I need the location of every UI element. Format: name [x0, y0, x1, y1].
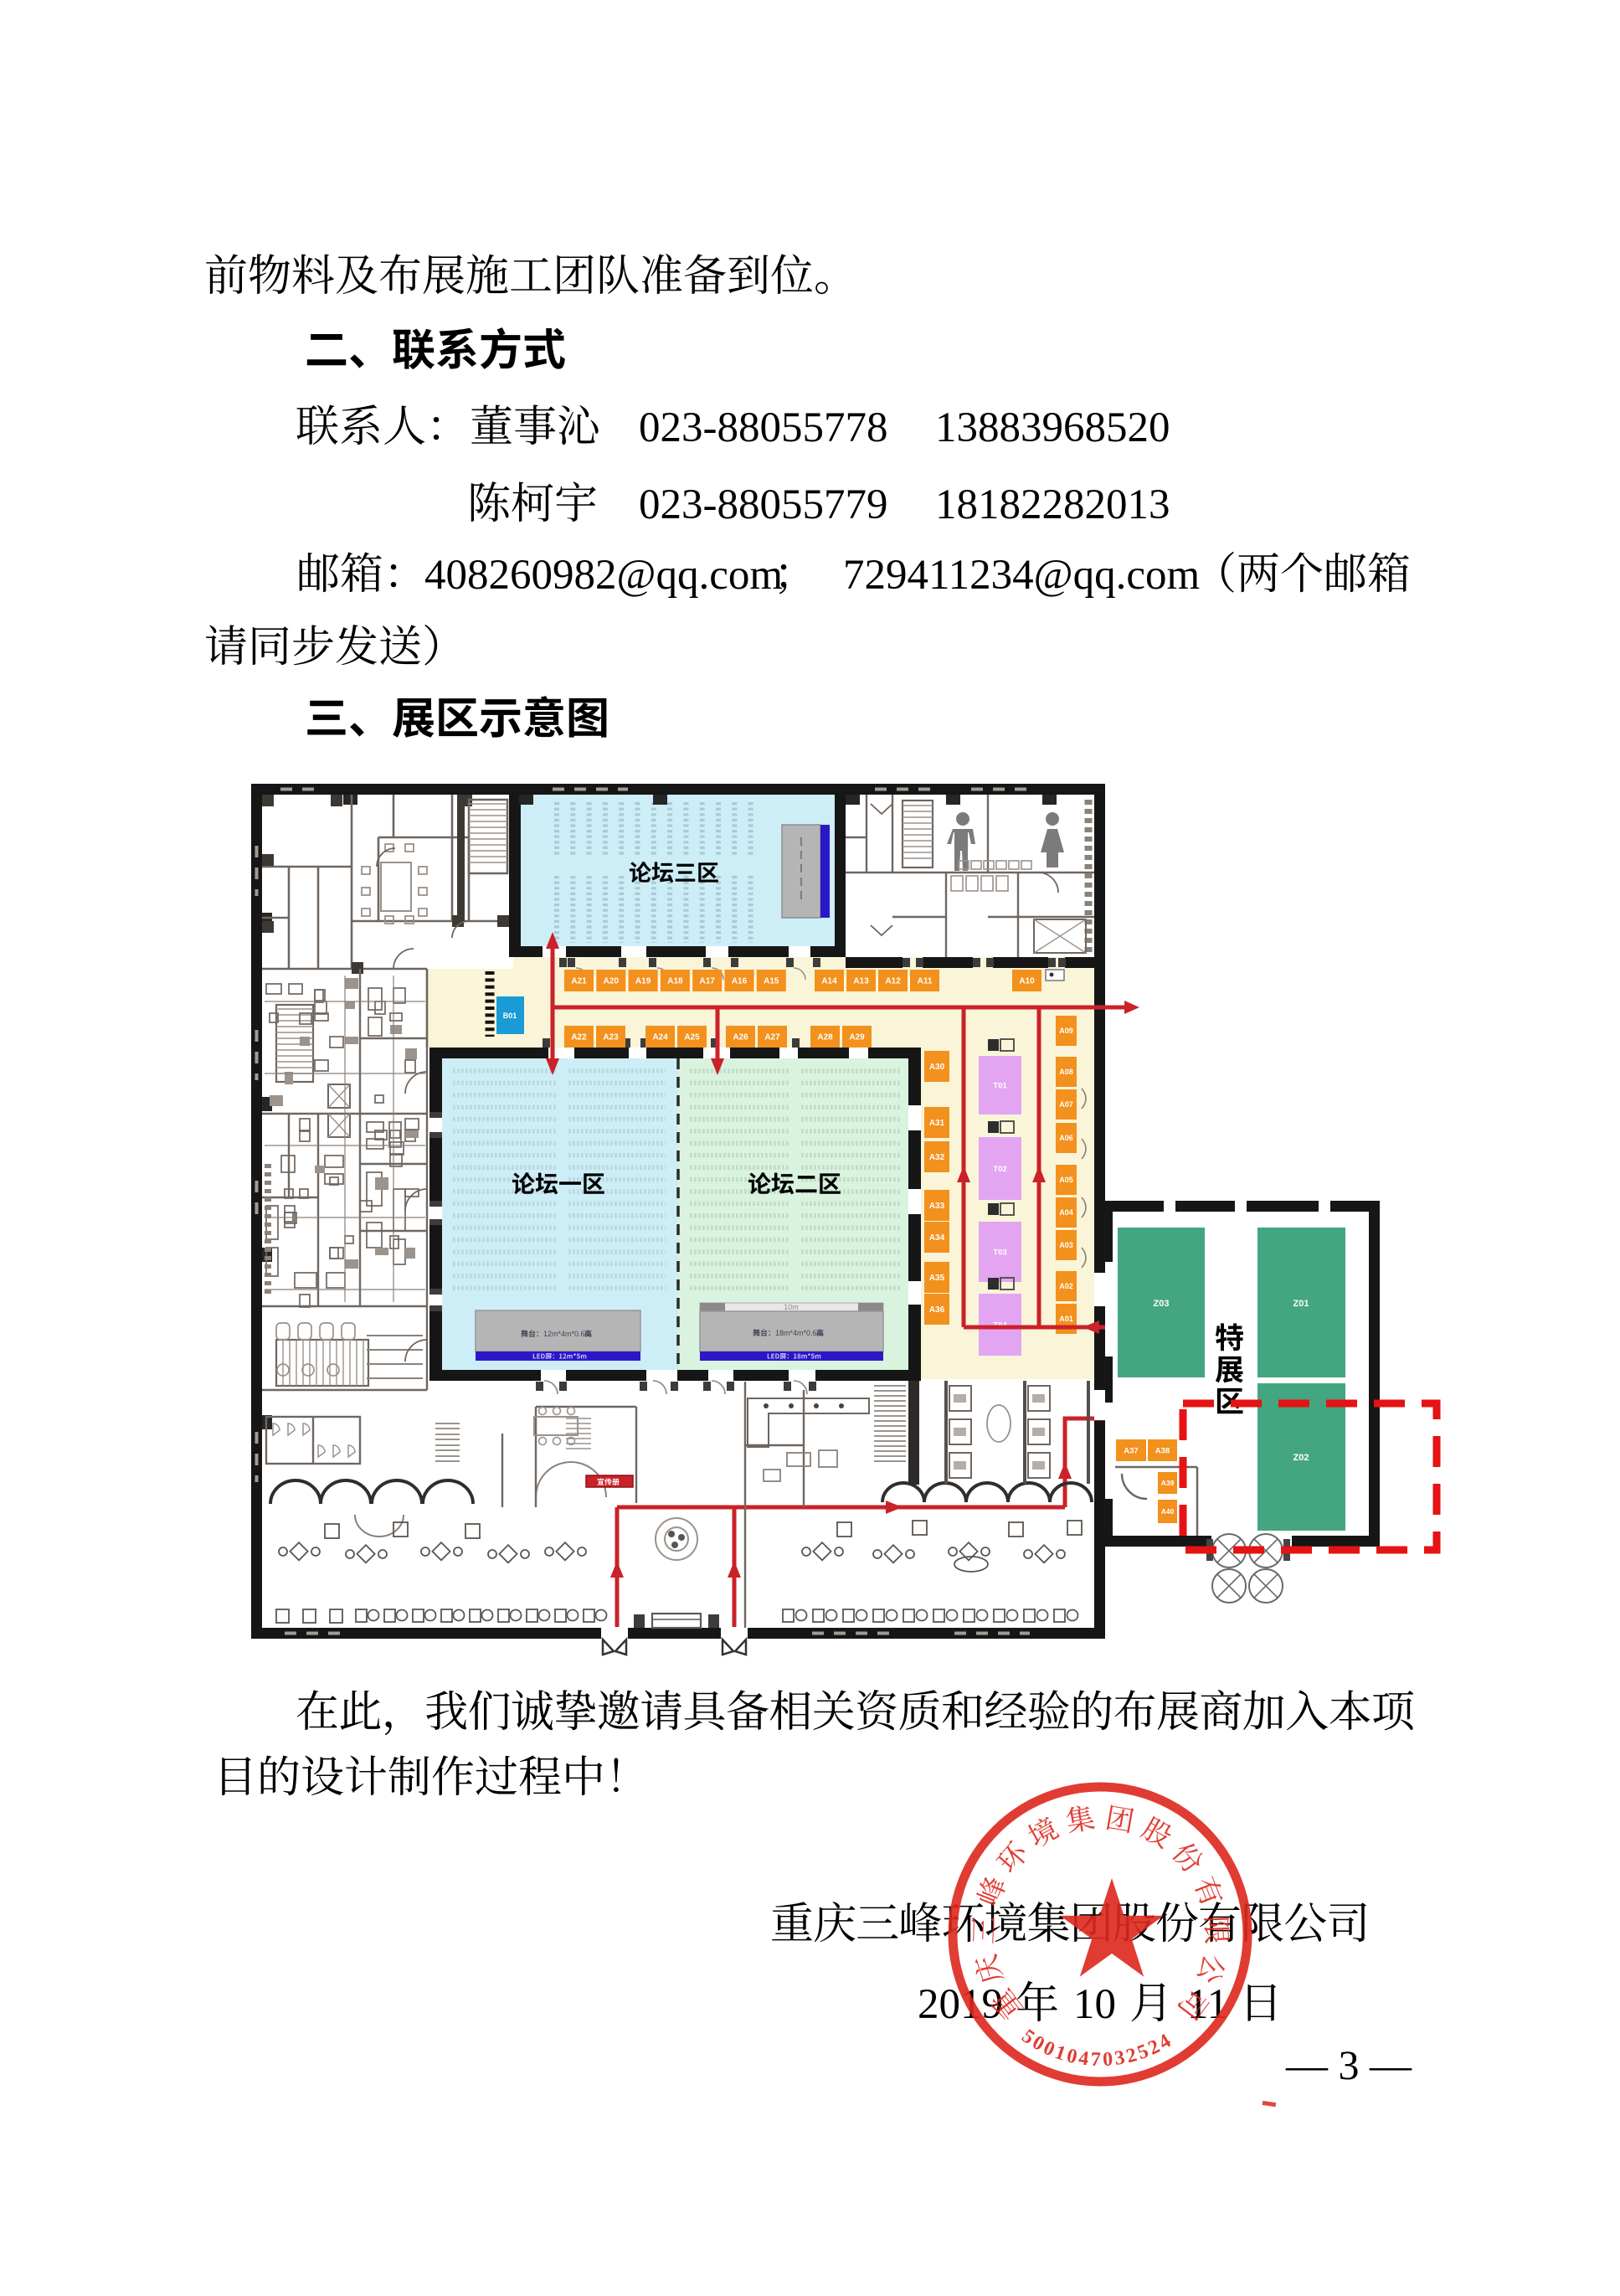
svg-text:A22: A22 [571, 1033, 587, 1042]
svg-text:A37: A37 [1124, 1446, 1138, 1455]
svg-text:A24: A24 [652, 1033, 668, 1042]
svg-text:A03: A03 [1059, 1241, 1073, 1249]
svg-text:A08: A08 [1059, 1068, 1073, 1076]
svg-text:A11: A11 [918, 977, 933, 986]
svg-text:A05: A05 [1059, 1176, 1073, 1184]
svg-text:A28: A28 [817, 1033, 833, 1042]
svg-text:A35: A35 [929, 1274, 945, 1283]
svg-text:A36: A36 [929, 1305, 945, 1315]
svg-text:A16: A16 [732, 977, 748, 986]
svg-text:A01: A01 [1059, 1315, 1073, 1323]
svg-text:Z02: Z02 [1293, 1453, 1309, 1463]
svg-text:A17: A17 [700, 977, 716, 986]
svg-text:A29: A29 [849, 1033, 865, 1042]
svg-text:A10: A10 [1019, 977, 1035, 986]
svg-text:18182282013: 18182282013 [935, 481, 1170, 528]
svg-text:A12: A12 [885, 977, 901, 986]
svg-text:— 3 —: — 3 — [1285, 2041, 1412, 2088]
svg-text:A23: A23 [603, 1033, 619, 1042]
svg-text:A32: A32 [929, 1153, 945, 1162]
svg-text:A18: A18 [667, 977, 683, 986]
svg-text:A20: A20 [604, 977, 620, 986]
svg-text:A07: A07 [1059, 1100, 1073, 1109]
svg-text:Z01: Z01 [1293, 1299, 1309, 1309]
svg-text:10: 10 [1073, 1981, 1116, 2028]
svg-text:T03: T03 [993, 1248, 1006, 1258]
svg-text:023-88055779: 023-88055779 [639, 481, 887, 528]
svg-text:A30: A30 [929, 1063, 945, 1072]
svg-text:10m: 10m [784, 1303, 799, 1311]
svg-text:A39: A39 [1161, 1479, 1175, 1487]
svg-text:18m*4m*0.6m: 18m*4m*0.6m [775, 1329, 823, 1337]
svg-text:023-88055778: 023-88055778 [639, 404, 887, 451]
svg-text:Z03: Z03 [1154, 1299, 1170, 1309]
svg-text:A27: A27 [764, 1033, 780, 1042]
svg-text:12m*4m*0.6m: 12m*4m*0.6m [543, 1330, 591, 1338]
svg-text:0: 0 [1102, 2048, 1113, 2071]
svg-text:729411234@qq.com: 729411234@qq.com [843, 552, 1200, 599]
svg-text:7: 7 [1090, 2049, 1101, 2071]
svg-text:408260982@qq.com: 408260982@qq.com [424, 552, 783, 599]
svg-text:A06: A06 [1059, 1134, 1073, 1142]
svg-text:A15: A15 [764, 977, 779, 986]
svg-text:A31: A31 [929, 1119, 945, 1128]
svg-text:A19: A19 [635, 977, 651, 986]
svg-text:A13: A13 [853, 977, 869, 986]
svg-text:A14: A14 [821, 977, 837, 986]
svg-text:13883968520: 13883968520 [935, 404, 1170, 451]
svg-text:A33: A33 [929, 1202, 945, 1211]
svg-text:B01: B01 [503, 1012, 517, 1020]
svg-text:A02: A02 [1059, 1282, 1073, 1290]
svg-text:A26: A26 [733, 1033, 748, 1042]
svg-text:A25: A25 [684, 1033, 700, 1042]
svg-text:T01: T01 [993, 1082, 1007, 1091]
svg-text:A34: A34 [929, 1233, 945, 1243]
svg-text:A21: A21 [571, 977, 587, 986]
svg-text:A09: A09 [1059, 1027, 1073, 1035]
svg-text:A40: A40 [1161, 1507, 1175, 1516]
svg-text:T02: T02 [993, 1165, 1006, 1174]
svg-text:4: 4 [1077, 2047, 1090, 2070]
svg-text:A38: A38 [1155, 1446, 1170, 1455]
svg-text:A04: A04 [1059, 1208, 1073, 1217]
